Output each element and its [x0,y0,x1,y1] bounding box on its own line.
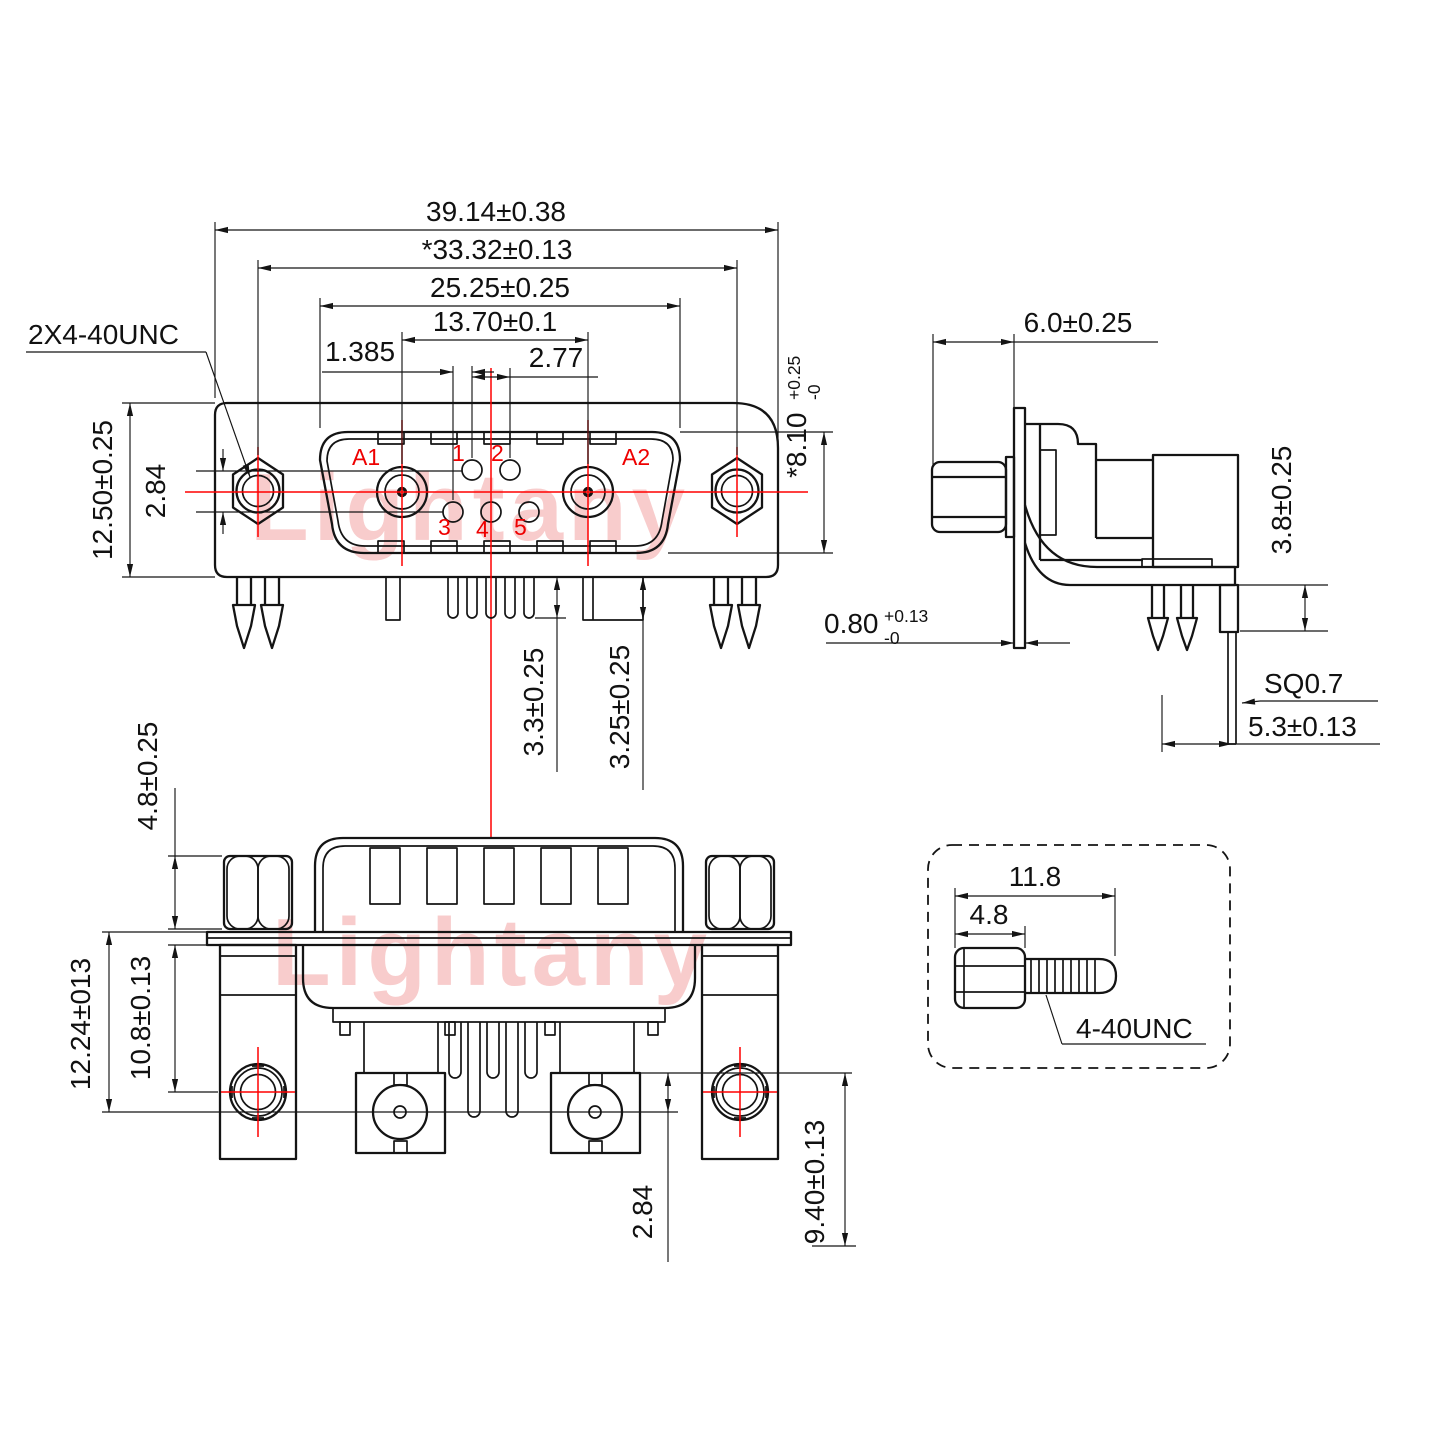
dim-overall-width: 39.14±0.38 [426,196,566,227]
side-square-pin [1228,632,1236,744]
dim-total-length: 11.8 [1009,861,1061,892]
a1-tail-leg [386,577,400,620]
rear-right-nut [706,856,774,929]
dim-nut-height: 4.8±0.25 [132,722,163,831]
side-flange-plate [1014,408,1025,648]
dim-row-offset-rear: 2.84 [627,1185,658,1240]
side-washer [1006,457,1014,537]
detail-view: 11.8 4.8 4-40UNC [928,845,1230,1068]
pin-label-1: 1 [452,440,465,466]
dim-pin-pitch: 2.77 [529,342,584,373]
front-bottom-features [233,577,760,648]
dim-pin-offset-side: 5.3±0.13 [1248,711,1357,742]
pin-square-callout: SQ0.7 [1264,668,1343,699]
dim-shell-height: *8.10 [781,413,812,478]
dim-inner-span: 10.8±0.13 [125,956,156,1080]
pin-label-5: 5 [514,514,527,540]
side-body [932,408,1238,744]
screw-head [955,948,1025,1008]
rear-dimension-lines [102,788,856,1262]
dim-pin-length: 3.3±0.25 [518,648,549,757]
dim-flange-thickness-tol-minus: -0 [884,628,900,648]
side-coax-body [1153,455,1238,567]
dim-flange-thickness-group: 0.80 +0.13 -0 [824,606,928,648]
drawing-page: Lightany Lightany [0,0,1440,1440]
dim-standoff: 3.8±0.25 [1266,446,1297,555]
pin-label-3: 3 [438,514,451,540]
detail-thread-callout: 4-40UNC [1076,1013,1193,1044]
dim-shell-height-tol-minus: -0 [804,384,824,400]
watermark-rear: Lightany [272,899,712,1006]
dim-coax-span: 13.70±0.1 [433,306,557,337]
dim-flange-thickness-tol-plus: +0.13 [884,606,928,626]
dim-body-height: 12.50±0.25 [87,420,118,560]
pin-label-2: 2 [491,440,504,466]
dim-head-length: 4.8 [970,899,1009,930]
dim-depth: 6.0±0.25 [1024,307,1133,338]
side-view: 6.0±0.25 0.80 +0.13 -0 3.8±0.25 SQ0.7 5.… [824,307,1380,752]
jackscrew-drawing [955,948,1116,1008]
dim-shell-height-tol-plus: +0.25 [784,356,804,400]
dim-mounting-span: *33.32±0.13 [422,234,573,265]
dim-pin-row-offset: 2.84 [140,464,171,519]
watermark-front: Lightany [250,454,690,561]
a2-tail-bracket [583,577,643,620]
dim-coax-depth: 9.40±0.13 [799,1120,830,1244]
dim-shell-height-group: *8.10 +0.25 -0 [781,356,824,478]
dim-mount-span: 12.24±013 [65,958,96,1090]
front-thread-callout: 2X4-40UNC [28,319,179,350]
pin-label-4: 4 [476,516,489,542]
coax-label-a1: A1 [352,444,380,470]
rear-shell-slots [370,848,628,904]
rear-coax-block-left [356,1073,445,1153]
coax-label-a2: A2 [622,444,650,470]
dim-pin-offset: 1.385 [325,336,395,367]
rear-coax-block-right [551,1073,640,1153]
dim-flange-thickness: 0.80 [824,608,879,639]
rear-pin-tails [449,1022,537,1117]
connector-drawing-canvas: Lightany Lightany [0,0,1440,1440]
side-jackscrew-nut [932,462,1006,532]
side-pin-base [1220,585,1238,632]
dim-bracket-length: 3.25±0.25 [604,645,635,769]
dim-shell-width: 25.25±0.25 [430,272,570,303]
screw-threads [1031,959,1095,993]
